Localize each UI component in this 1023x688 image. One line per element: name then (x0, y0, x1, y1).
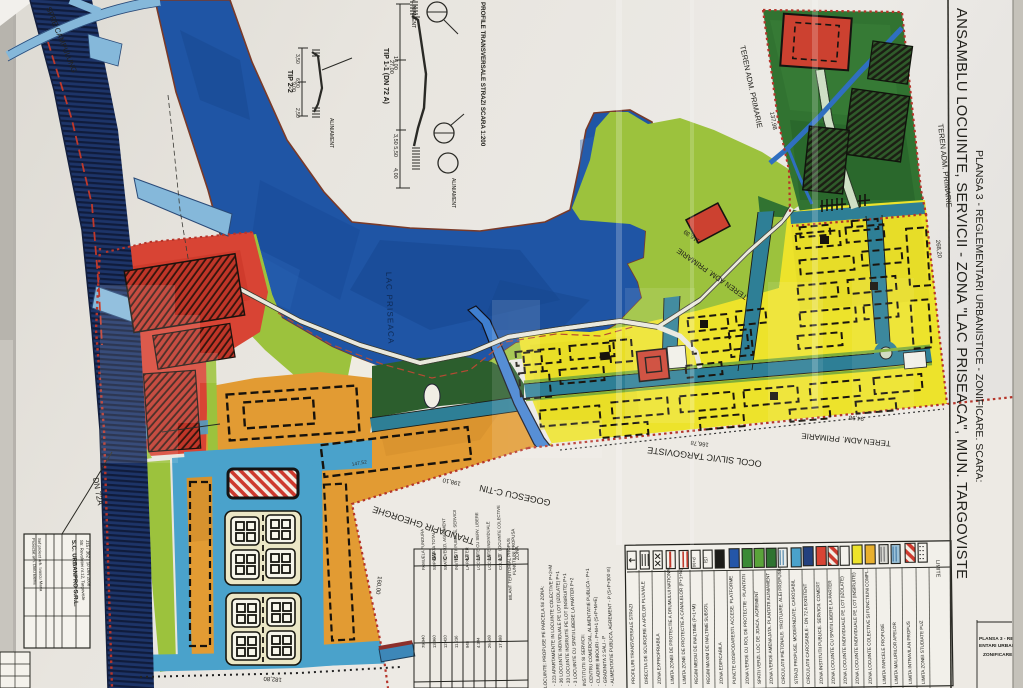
svg-text:PLANSA 3 - REGLEMENTARI URBANI: PLANSA 3 - REGLEMENTARI URBANISTICE - ZO… (973, 150, 985, 482)
svg-text:ANSAMBLU LOCUINTE, SERVICII -: ANSAMBLU LOCUINTE, SERVICII - ZONA "LAC … (953, 8, 969, 579)
svg-text:3,50 5,50: 3,50 5,50 (392, 134, 398, 157)
svg-text:11.236: 11.236 (454, 635, 459, 648)
svg-text:79.940: 79.940 (421, 634, 426, 648)
svg-text:TIP 2-2: TIP 2-2 (286, 70, 293, 93)
svg-text:26.508: 26.508 (487, 634, 492, 648)
svg-text:948: 948 (465, 640, 470, 648)
svg-text:2,50: 2,50 (294, 108, 300, 118)
svg-text:LA PARTER: LA PARTER (464, 547, 470, 570)
svg-text:TIP 1-1 (DN 72 A): TIP 1-1 (DN 72 A) (382, 48, 389, 104)
svg-text:PROFILE TRANSVERSALE STRAZI SC: PROFILE TRANSVERSALE STRAZI SCARA 1:200 (479, 2, 486, 147)
svg-text:3,50: 3,50 (294, 54, 300, 64)
svg-text:ALINIAMENT: ALINIAMENT (328, 118, 334, 148)
svg-text:(S): (S) (703, 557, 708, 564)
svg-text:12.420: 12.420 (443, 634, 448, 648)
svg-text:ALINIAMENT: ALINIAMENT (410, 0, 416, 28)
svg-text:ZONIFICARE: ZONIFICARE (983, 652, 1013, 658)
svg-text:17.888: 17.888 (498, 634, 503, 648)
svg-text:LIMITE: LIMITE (934, 560, 941, 578)
svg-text:ALINIAMENT: ALINIAMENT (450, 178, 456, 208)
svg-text:P+M: P+M (691, 557, 696, 567)
svg-text:4.344: 4.344 (476, 637, 481, 648)
svg-text:13.960: 13.960 (432, 634, 437, 648)
svg-text:4,00: 4,00 (392, 168, 398, 179)
